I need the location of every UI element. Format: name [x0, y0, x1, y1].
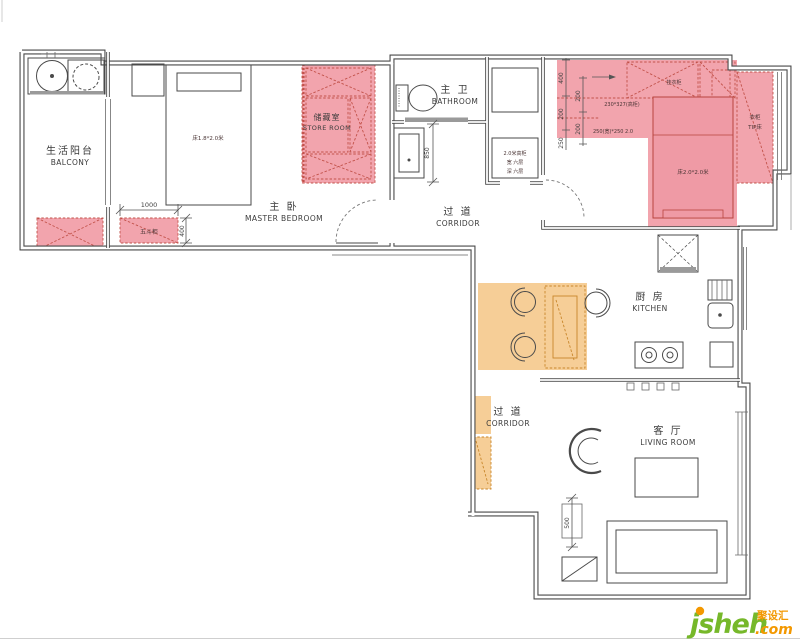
- toilet-tank: [396, 85, 408, 111]
- master-bed-size: 床1.8*2.0米: [192, 134, 224, 142]
- laundry-counter: [28, 58, 105, 94]
- label-store-en: STORE ROOM: [303, 124, 351, 132]
- logo-cn: 聚设汇: [756, 609, 789, 622]
- living-furniture: [562, 429, 727, 583]
- dim-1000: 1000: [141, 201, 158, 209]
- washing-machine: [73, 64, 99, 90]
- gas-stove: [635, 342, 683, 368]
- second-bed: [653, 97, 733, 218]
- sink-drain: [718, 313, 722, 317]
- dim-w250: 250: [558, 137, 565, 149]
- master-bed: [166, 65, 251, 205]
- basin-drain: [408, 159, 411, 162]
- bathroom-fixtures: [394, 85, 437, 178]
- cabinet-note-3: 深 六层: [507, 168, 524, 175]
- dim-500: 500: [564, 517, 571, 529]
- cabinet-note-2: 宽 六层: [507, 159, 524, 166]
- balcony-glass-door: [106, 99, 111, 205]
- burner-left: [642, 348, 657, 363]
- counter-edge: [30, 91, 104, 95]
- second-bedroom-door-arc: [546, 180, 584, 218]
- floor-plan-drawing: 生活阳台 BALCONY 主 卧 MASTER BEDROOM 储藏室 STOR…: [0, 0, 800, 640]
- label-bathroom-en: BATHROOM: [432, 97, 479, 106]
- label-living-en: LIVING ROOM: [640, 438, 695, 447]
- sink-drain: [50, 74, 54, 78]
- wardrobe-label-2: TIP床: [747, 123, 762, 131]
- armchair: [570, 429, 601, 473]
- master-bedroom-furniture: [132, 64, 251, 205]
- label-bathroom-zh: 主 卫: [440, 84, 469, 96]
- label-corridor1-en: CORRIDOR: [436, 219, 480, 228]
- cabinet-note-1: 2.0米高柜: [504, 150, 527, 157]
- dim-w200a: 200: [575, 90, 582, 102]
- label-master-zh: 主 卧: [269, 200, 298, 213]
- second-bed-size: 床2.0*2.0米: [677, 168, 709, 176]
- label-kitchen-zh: 厨 房: [635, 290, 664, 303]
- label-corridor2-zh: 过 道: [493, 405, 522, 418]
- closet-note-2: 250(宽)*250 2.0: [593, 128, 633, 135]
- counter-end: [710, 342, 733, 367]
- burner-right: [663, 348, 678, 363]
- coffee-table: [635, 458, 698, 497]
- dining-chair: [585, 292, 607, 314]
- bedroom-bay-window: [778, 72, 782, 180]
- balcony-fixtures: [28, 52, 105, 95]
- logo: jsheh 聚设汇 .com: [686, 607, 793, 640]
- dim-w400: 400: [558, 72, 565, 84]
- dim-w200c: 200: [575, 123, 582, 135]
- label-master-en: MASTER BEDROOM: [245, 214, 323, 223]
- closet-note-1: 230*327(高柜): [604, 101, 640, 108]
- master-bedroom-door-arc: [336, 200, 378, 242]
- pillow: [177, 73, 241, 91]
- wardrobe-label-1: 衣柜: [749, 113, 761, 121]
- drawer-cabinet-label: 五斗柜: [140, 228, 158, 236]
- nightstand: [132, 64, 164, 96]
- logo-dot-icon: [696, 607, 704, 615]
- label-living-zh: 客 厅: [653, 424, 682, 437]
- dim-400: 400: [179, 225, 186, 237]
- hanging-area-label: 挂衣柜: [666, 79, 681, 86]
- label-balcony-en: BALCONY: [51, 158, 90, 167]
- label-kitchen-en: KITCHEN: [632, 304, 667, 313]
- floor-plan-page: 生活阳台 BALCONY 主 卧 MASTER BEDROOM 储藏室 STOR…: [0, 0, 800, 640]
- bed-footboard: [663, 210, 723, 218]
- label-corridor2-en: CORRIDOR: [486, 419, 530, 428]
- label-balcony-zh: 生活阳台: [46, 144, 94, 157]
- bathroom-sliding-door: [405, 118, 468, 123]
- dim-850: 850: [424, 147, 431, 159]
- kitchen-window: [744, 247, 747, 330]
- label-corridor1-zh: 过 道: [443, 205, 472, 218]
- dim-w200b: 200: [558, 108, 565, 120]
- logo-tld: .com: [755, 622, 793, 638]
- wash-basin: [399, 134, 419, 172]
- label-store-zh: 储藏室: [314, 112, 341, 122]
- corridor-strip: [475, 396, 491, 434]
- kitchen-wall-vents: [627, 383, 679, 390]
- sofa-seat: [616, 530, 717, 573]
